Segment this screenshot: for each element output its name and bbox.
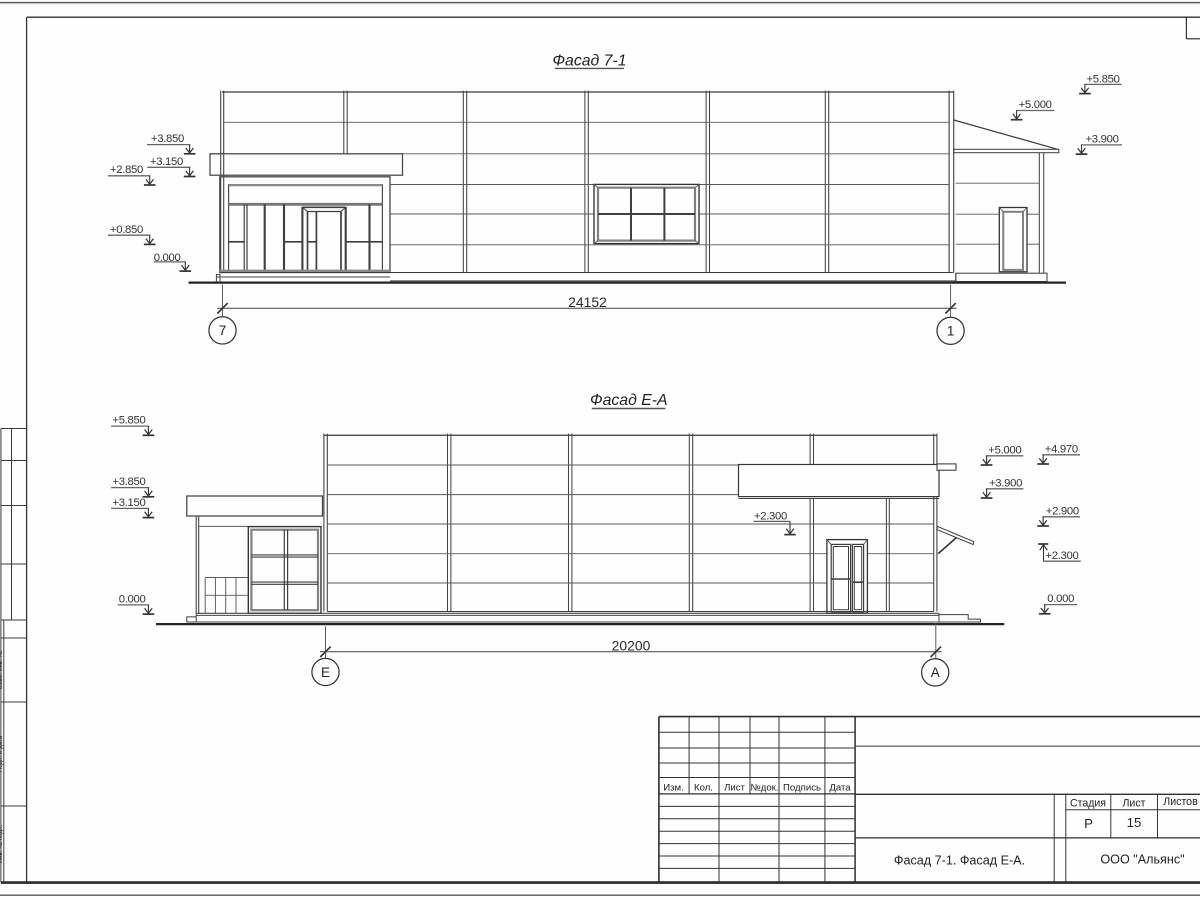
svg-text:Дата: Дата bbox=[829, 782, 851, 793]
svg-text:А: А bbox=[931, 665, 940, 680]
svg-text:Листов: Листов bbox=[1163, 796, 1198, 808]
svg-text:+3.900: +3.900 bbox=[1086, 134, 1119, 146]
svg-text:+3.850: +3.850 bbox=[151, 133, 184, 145]
svg-text:+5.000: +5.000 bbox=[1019, 99, 1052, 111]
svg-text:Фасад 7-1: Фасад 7-1 bbox=[553, 53, 627, 70]
svg-text:0.000: 0.000 bbox=[119, 594, 146, 606]
svg-text:Изм.: Изм. bbox=[663, 782, 684, 793]
svg-text:+2.300: +2.300 bbox=[1045, 550, 1078, 562]
svg-text:Лист: Лист bbox=[1122, 798, 1145, 810]
svg-text:+3.150: +3.150 bbox=[150, 156, 183, 168]
svg-text:+2.900: +2.900 bbox=[1046, 505, 1079, 517]
svg-text:+5.850: +5.850 bbox=[112, 414, 145, 426]
svg-text:Кол.: Кол. bbox=[694, 782, 713, 793]
svg-text:Подпись: Подпись bbox=[783, 782, 821, 793]
svg-text:№док.: №док. bbox=[750, 782, 778, 793]
svg-text:Взам. инв. №: Взам. инв. № bbox=[0, 650, 4, 689]
svg-text:Стадия: Стадия bbox=[1070, 798, 1106, 810]
svg-text:15: 15 bbox=[1127, 815, 1142, 830]
svg-text:Р: Р bbox=[1084, 816, 1093, 831]
svg-text:+2.300: +2.300 bbox=[754, 510, 787, 522]
svg-text:20200: 20200 bbox=[612, 638, 651, 654]
svg-text:+3.850: +3.850 bbox=[112, 476, 145, 488]
svg-text:Фасад 7-1. Фасад Е-А.: Фасад 7-1. Фасад Е-А. bbox=[894, 853, 1025, 867]
svg-text:+5.850: +5.850 bbox=[1087, 73, 1120, 85]
svg-text:+3.900: +3.900 bbox=[989, 477, 1022, 489]
svg-text:Фасад Е-А: Фасад Е-А bbox=[590, 392, 667, 409]
svg-text:+5.000: +5.000 bbox=[988, 444, 1021, 456]
svg-text:1: 1 bbox=[947, 324, 955, 339]
svg-text:0.000: 0.000 bbox=[1047, 593, 1074, 605]
svg-text:+4.970: +4.970 bbox=[1045, 444, 1078, 456]
svg-text:+2.850: +2.850 bbox=[110, 164, 143, 176]
svg-text:+3.150: +3.150 bbox=[112, 497, 145, 509]
svg-text:24152: 24152 bbox=[568, 294, 607, 310]
svg-text:7: 7 bbox=[219, 323, 227, 338]
svg-text:Е: Е bbox=[321, 665, 330, 680]
svg-text:Лист: Лист bbox=[724, 782, 745, 793]
svg-text:ООО "Альянс": ООО "Альянс" bbox=[1100, 853, 1184, 867]
svg-text:+0.850: +0.850 bbox=[110, 224, 143, 236]
svg-text:Подп. и дата: Подп. и дата bbox=[0, 735, 4, 772]
svg-text:Инв. № подл.: Инв. № подл. bbox=[0, 824, 4, 863]
